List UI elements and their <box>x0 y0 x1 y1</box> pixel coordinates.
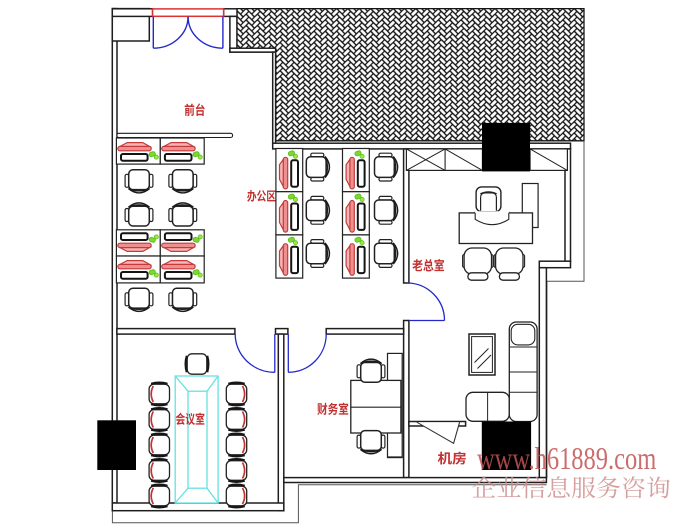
svg-text:www.h61889.com: www.h61889.com <box>477 442 656 477</box>
